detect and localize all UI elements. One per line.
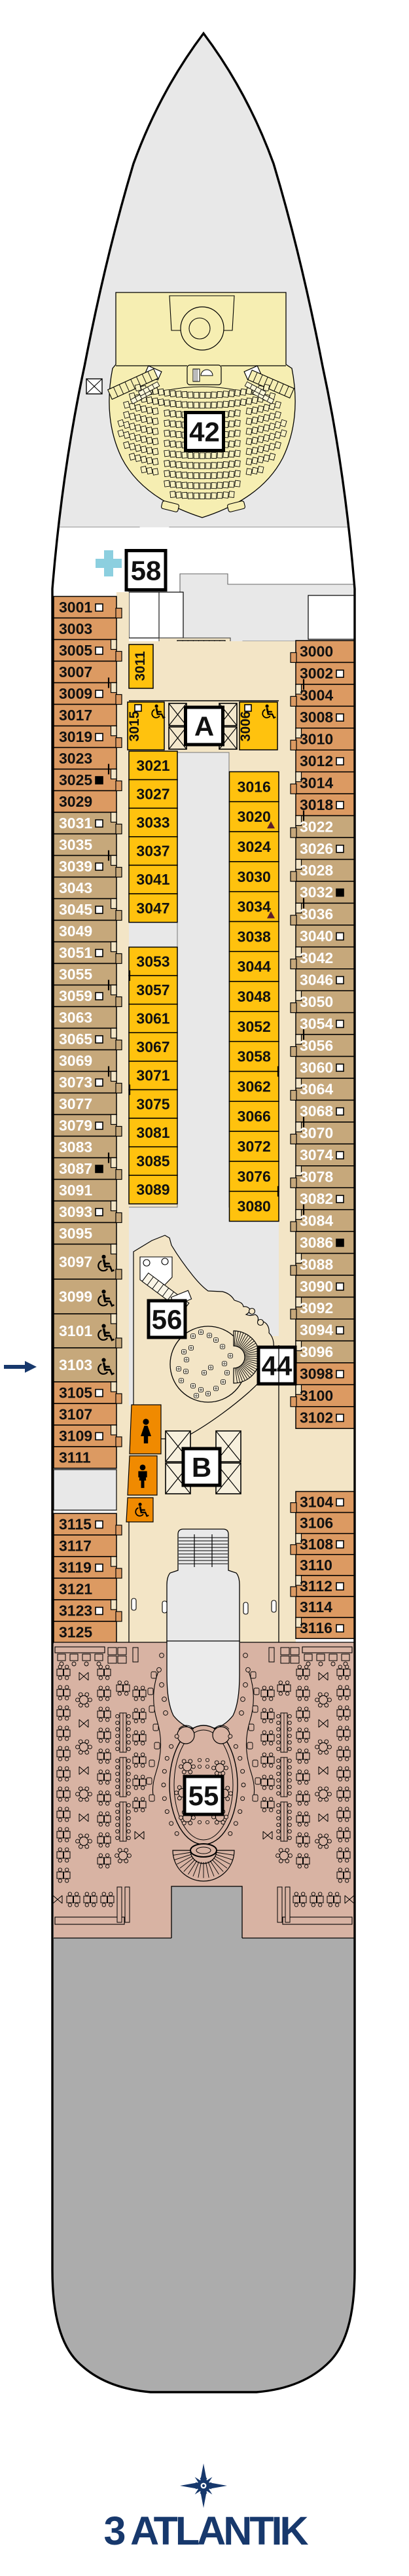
- svg-text:3078: 3078: [300, 1169, 333, 1186]
- svg-text:3086: 3086: [300, 1234, 333, 1251]
- svg-text:3098: 3098: [300, 1366, 333, 1383]
- svg-text:3031: 3031: [59, 815, 92, 832]
- svg-text:3103: 3103: [59, 1356, 92, 1373]
- svg-text:56: 56: [152, 1304, 183, 1335]
- svg-text:3007: 3007: [59, 663, 92, 680]
- svg-text:3106: 3106: [300, 1515, 333, 1532]
- svg-text:3114: 3114: [300, 1598, 332, 1615]
- svg-text:3099: 3099: [59, 1288, 92, 1305]
- svg-text:3066: 3066: [238, 1108, 271, 1125]
- svg-text:44: 44: [262, 1350, 293, 1381]
- svg-text:3119: 3119: [59, 1559, 92, 1576]
- svg-text:3077: 3077: [59, 1095, 92, 1112]
- svg-text:3027: 3027: [136, 785, 169, 802]
- svg-text:3054: 3054: [300, 1015, 333, 1032]
- svg-text:3016: 3016: [238, 778, 271, 795]
- svg-text:3045: 3045: [59, 901, 92, 918]
- svg-text:3010: 3010: [300, 731, 333, 748]
- svg-text:3085: 3085: [136, 1153, 169, 1170]
- svg-text:3049: 3049: [59, 923, 92, 940]
- svg-text:3022: 3022: [300, 818, 333, 835]
- svg-text:3115: 3115: [59, 1516, 92, 1533]
- svg-text:3000: 3000: [300, 643, 333, 660]
- svg-text:3034: 3034: [238, 898, 271, 915]
- svg-text:3092: 3092: [300, 1299, 333, 1316]
- svg-text:3019: 3019: [59, 728, 92, 745]
- svg-text:3037: 3037: [136, 843, 169, 860]
- svg-text:3116: 3116: [300, 1619, 332, 1636]
- svg-text:3121: 3121: [59, 1581, 92, 1598]
- svg-text:3057: 3057: [136, 981, 169, 998]
- svg-text:3070: 3070: [300, 1125, 333, 1142]
- svg-text:3110: 3110: [300, 1557, 332, 1574]
- svg-text:3056: 3056: [300, 1037, 333, 1054]
- svg-text:3035: 3035: [59, 836, 92, 853]
- svg-text:3014: 3014: [300, 774, 333, 791]
- svg-text:3117: 3117: [59, 1538, 92, 1555]
- svg-text:3100: 3100: [300, 1387, 333, 1404]
- svg-text:3061: 3061: [136, 1010, 169, 1027]
- svg-text:3096: 3096: [300, 1343, 333, 1360]
- svg-text:A: A: [194, 711, 214, 742]
- svg-text:3107: 3107: [59, 1406, 92, 1423]
- svg-text:3053: 3053: [136, 953, 169, 970]
- svg-text:3017: 3017: [59, 707, 92, 724]
- svg-text:3083: 3083: [59, 1138, 92, 1156]
- svg-text:55: 55: [188, 1780, 219, 1811]
- svg-text:3087: 3087: [59, 1160, 92, 1177]
- svg-text:3033: 3033: [136, 814, 169, 831]
- svg-text:3094: 3094: [300, 1322, 333, 1339]
- svg-text:3109: 3109: [59, 1428, 92, 1445]
- svg-text:3047: 3047: [136, 900, 169, 917]
- svg-text:3009: 3009: [59, 685, 92, 702]
- svg-text:3058: 3058: [238, 1048, 271, 1065]
- svg-text:3052: 3052: [238, 1018, 271, 1035]
- svg-text:3073: 3073: [59, 1074, 92, 1091]
- svg-text:3093: 3093: [59, 1203, 92, 1220]
- svg-text:3076: 3076: [238, 1168, 271, 1185]
- svg-text:3071: 3071: [136, 1067, 169, 1084]
- svg-text:3026: 3026: [300, 840, 333, 857]
- svg-text:3101: 3101: [59, 1322, 92, 1339]
- svg-text:3095: 3095: [59, 1225, 92, 1242]
- svg-text:3004: 3004: [300, 687, 333, 704]
- svg-text:3080: 3080: [238, 1198, 271, 1215]
- svg-text:3084: 3084: [300, 1212, 333, 1229]
- svg-text:3068: 3068: [300, 1103, 333, 1120]
- svg-text:3062: 3062: [238, 1078, 271, 1095]
- svg-text:3075: 3075: [136, 1095, 169, 1112]
- svg-text:B: B: [192, 1452, 211, 1483]
- svg-text:3065: 3065: [59, 1031, 92, 1048]
- svg-text:3041: 3041: [136, 871, 169, 888]
- svg-text:3032: 3032: [300, 884, 333, 901]
- svg-text:3002: 3002: [300, 665, 333, 682]
- svg-text:3079: 3079: [59, 1117, 92, 1134]
- svg-text:3028: 3028: [300, 862, 333, 879]
- svg-text:3097: 3097: [59, 1253, 92, 1270]
- svg-text:3039: 3039: [59, 858, 92, 875]
- svg-text:3024: 3024: [238, 838, 271, 855]
- svg-text:3030: 3030: [238, 868, 271, 885]
- svg-text:3108: 3108: [300, 1536, 333, 1553]
- svg-text:3111: 3111: [59, 1449, 91, 1466]
- svg-text:3044: 3044: [238, 958, 271, 975]
- svg-text:3123: 3123: [59, 1602, 92, 1619]
- svg-text:3025: 3025: [59, 771, 92, 788]
- svg-text:3074: 3074: [300, 1146, 333, 1163]
- svg-text:3089: 3089: [136, 1181, 169, 1198]
- svg-text:3006: 3006: [238, 711, 253, 742]
- svg-text:3088: 3088: [300, 1256, 333, 1273]
- svg-text:3081: 3081: [136, 1124, 169, 1141]
- svg-text:3021: 3021: [136, 757, 169, 774]
- svg-text:3105: 3105: [59, 1385, 92, 1402]
- svg-text:3069: 3069: [59, 1052, 92, 1069]
- svg-text:3063: 3063: [59, 1009, 92, 1026]
- svg-text:3005: 3005: [59, 642, 92, 659]
- svg-text:3012: 3012: [300, 752, 333, 769]
- svg-text:3015: 3015: [127, 711, 142, 741]
- svg-text:3043: 3043: [59, 879, 92, 896]
- svg-text:3091: 3091: [59, 1182, 92, 1199]
- svg-text:3050: 3050: [300, 993, 333, 1010]
- svg-text:3038: 3038: [238, 928, 271, 945]
- svg-text:3090: 3090: [300, 1278, 333, 1295]
- svg-text:3036: 3036: [300, 906, 333, 923]
- svg-text:3046: 3046: [300, 971, 333, 988]
- svg-text:3018: 3018: [300, 796, 333, 813]
- svg-text:3102: 3102: [300, 1409, 333, 1426]
- svg-text:3055: 3055: [59, 966, 92, 983]
- svg-text:3125: 3125: [59, 1624, 92, 1641]
- svg-text:3029: 3029: [59, 793, 92, 810]
- svg-text:3072: 3072: [238, 1138, 271, 1155]
- svg-text:3048: 3048: [238, 988, 271, 1005]
- svg-text:3042: 3042: [300, 949, 333, 966]
- svg-text:3051: 3051: [59, 944, 92, 961]
- svg-text:3064: 3064: [300, 1081, 333, 1098]
- svg-text:42: 42: [189, 417, 220, 448]
- svg-text:3003: 3003: [59, 620, 92, 637]
- svg-text:3082: 3082: [300, 1190, 333, 1207]
- svg-text:3060: 3060: [300, 1059, 333, 1076]
- svg-text:3011: 3011: [133, 651, 148, 681]
- svg-text:3023: 3023: [59, 750, 92, 767]
- svg-text:3040: 3040: [300, 928, 333, 945]
- svg-text:3020: 3020: [238, 808, 271, 825]
- svg-text:3001: 3001: [59, 599, 92, 616]
- svg-text:3 ATLANTIK: 3 ATLANTIK: [103, 2509, 308, 2553]
- svg-text:3067: 3067: [136, 1038, 169, 1055]
- svg-text:3059: 3059: [59, 987, 92, 1004]
- svg-text:3104: 3104: [300, 1494, 333, 1511]
- svg-text:3008: 3008: [300, 709, 333, 726]
- svg-text:58: 58: [131, 556, 162, 586]
- svg-text:3112: 3112: [300, 1578, 332, 1595]
